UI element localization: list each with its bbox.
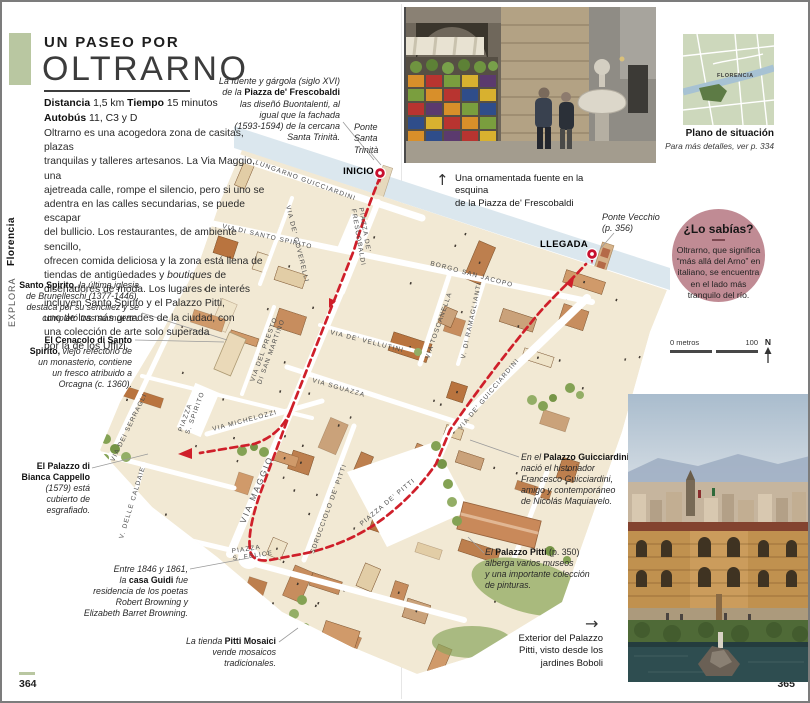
callout-frescobaldi: La fuente y gárgola (siglo XVI) de la Pi… bbox=[200, 76, 340, 144]
route-end-label: LLEGADA bbox=[526, 239, 588, 250]
section-color-swatch bbox=[9, 33, 31, 85]
did-you-know-circle: ¿Lo sabías? Oltrarno, que significa “más… bbox=[672, 209, 765, 302]
walk-stats-line1: Distancia 1,5 km Tiempo 15 minutos bbox=[44, 97, 218, 112]
sidebar-region: Florencia bbox=[6, 217, 17, 266]
callout-palazzo-pitti: El Palazzo Pitti (p. 350) alberga varios… bbox=[485, 547, 625, 591]
scale-start-label: 0 metros bbox=[670, 338, 699, 347]
scale-segment bbox=[716, 350, 758, 353]
scale-end-label: 100 bbox=[745, 338, 758, 347]
walk-stats: Distancia 1,5 km Tiempo 15 minutos Autob… bbox=[44, 97, 218, 126]
locator-map: FLORENCIA bbox=[683, 34, 774, 125]
fountain-market-photo bbox=[404, 7, 656, 163]
callout-casa-guidi: Entre 1846 y 1861, la casa Guidi fue res… bbox=[46, 564, 188, 619]
callout-pitti-mosaici: La tienda Pitti Mosaici vende mosaicos t… bbox=[154, 636, 276, 669]
did-you-know-title: ¿Lo sabías? bbox=[672, 222, 765, 236]
page-number-left-value: 364 bbox=[19, 678, 37, 690]
up-arr0w-icon: ↑ bbox=[436, 171, 449, 189]
did-you-know-body: Oltrarno, que significa “más allá del Ar… bbox=[672, 245, 765, 301]
page-number-left: 364 bbox=[19, 672, 37, 690]
walk-stats-line2: Autobús 11, C3 y D bbox=[44, 112, 218, 127]
did-you-know-rule bbox=[712, 239, 725, 241]
page-number-tick bbox=[19, 672, 35, 675]
locator-subtitle: Para más detalles, ver p. 334 bbox=[662, 141, 774, 151]
route-start-label: INICIO bbox=[310, 166, 374, 177]
sidebar-section: EXPLORA bbox=[7, 277, 17, 327]
right-photo-caption: Exterior del Palazzo Pitti, visto desde … bbox=[473, 633, 603, 670]
callout-ponte-santa-trinita: Ponte Santa Trinità bbox=[354, 122, 378, 156]
sidebar-vertical-label: EXPLORA Florencia bbox=[6, 212, 17, 327]
callout-ponte-vecchio: Ponte Vecchio (p. 356) bbox=[602, 212, 674, 235]
right-arrow-icon: → bbox=[585, 614, 598, 633]
callout-santo-spirito: Santo Spirito, la última iglesia de Brun… bbox=[17, 280, 139, 324]
map-scale-bar: 0 metros 100 bbox=[670, 338, 758, 353]
north-label: N bbox=[759, 337, 777, 347]
north-arrow-icon bbox=[762, 347, 774, 364]
locator-title: Plano de situación bbox=[662, 128, 774, 139]
callout-bianca-cappello: El Palazzo di Bianca Cappello (1579) est… bbox=[8, 461, 90, 516]
north-compass: N bbox=[759, 337, 777, 369]
palazzo-pitti-photo bbox=[628, 394, 810, 682]
locator-city-label: FLORENCIA bbox=[717, 73, 754, 79]
page-kicker: UN PASEO POR bbox=[44, 34, 180, 51]
callout-cenacolo: El Cenacolo di Santo Spirito, viejo refe… bbox=[10, 335, 132, 390]
guidebook-spread: LUNGARNO GUICCIARDINIVIA DI SANTO SPIRIT… bbox=[0, 0, 810, 703]
title-rule bbox=[44, 90, 190, 92]
scale-segment bbox=[670, 350, 712, 353]
top-photo-caption: Una ornamentada fuente en la esquina de … bbox=[455, 173, 600, 210]
